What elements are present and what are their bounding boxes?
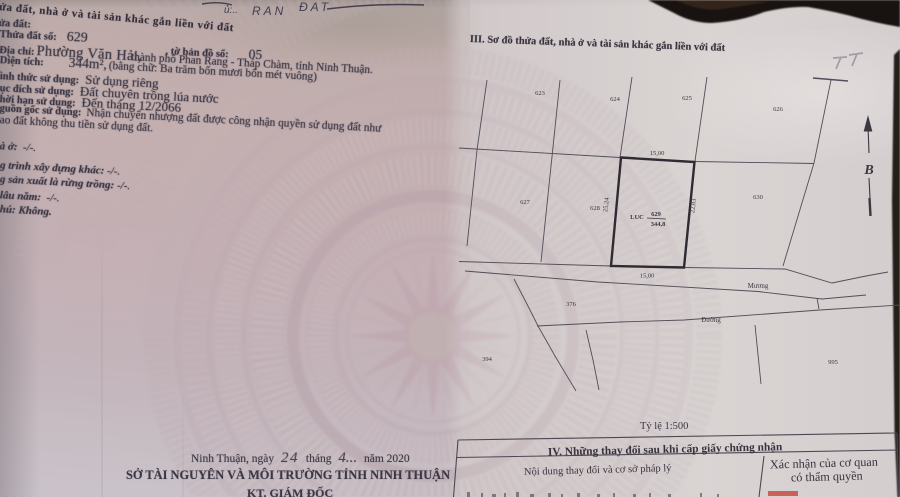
- svg-text:có thẩm quyền: có thẩm quyền: [791, 469, 863, 485]
- svg-text:IV. Những thay đổi sau khi cấp: IV. Những thay đổi sau khi cấp giấy chứn…: [548, 441, 783, 458]
- svg-text:Nội dung thay đổi và cơ sở phá: Nội dung thay đổi và cơ sở pháp lý: [524, 463, 673, 478]
